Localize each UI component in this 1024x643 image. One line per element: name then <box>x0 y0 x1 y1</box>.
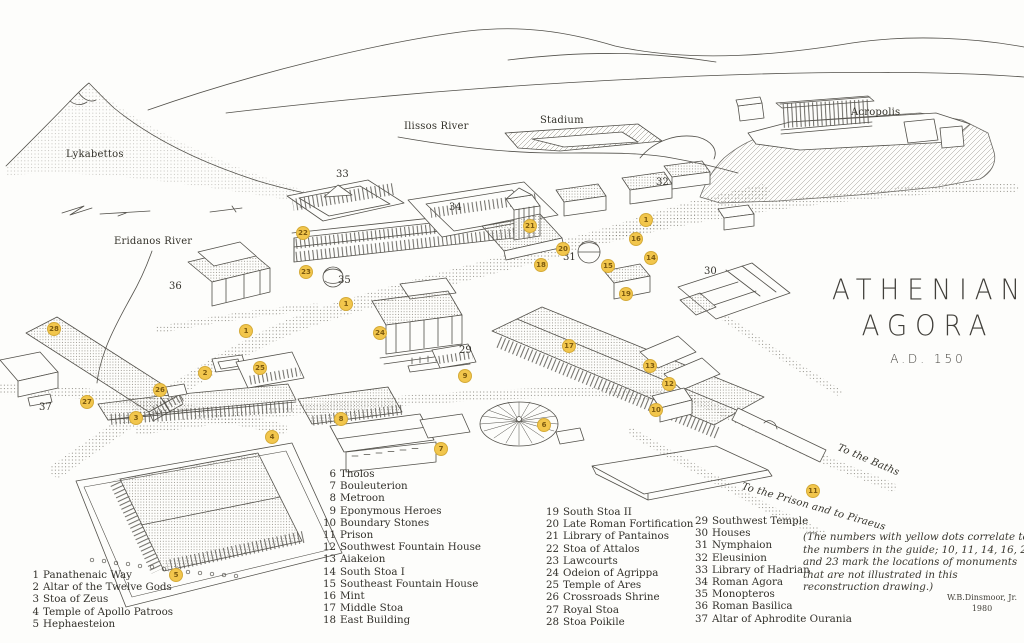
legend-entry-9: 9Eponymous Heroes <box>323 505 481 517</box>
legend-entry-17: 17Middle Stoa <box>323 602 481 614</box>
map-marker-2[interactable]: 2 <box>198 366 212 380</box>
map-number-33: 33 <box>336 169 349 180</box>
title-line-2: AGORA <box>832 311 1024 343</box>
map-number-34: 34 <box>449 202 462 213</box>
legend-entry-10: 10Boundary Stones <box>323 517 481 529</box>
map-marker-4[interactable]: 4 <box>265 430 279 444</box>
title-date: A.D. 150 <box>832 352 1024 366</box>
title-line-1: ATHENIAN <box>832 275 1024 307</box>
map-number-37: 37 <box>39 402 52 413</box>
legend-entry-27: 27Royal Stoa <box>546 604 693 616</box>
map-label-to-the-baths: To the Baths <box>836 442 901 478</box>
map-marker-7[interactable]: 7 <box>434 442 448 456</box>
legend-entry-37: 37Altar of Aphrodite Ourania <box>695 613 852 625</box>
credit-name: W.B.Dinsmoor, Jr. <box>940 593 1024 604</box>
map-marker-6[interactable]: 6 <box>537 418 551 432</box>
legend-column-2: 6Tholos7Bouleuterion8Metroon9Eponymous H… <box>323 468 481 627</box>
map-marker-19[interactable]: 19 <box>619 287 633 301</box>
legend-entry-18: 18East Building <box>323 614 481 626</box>
map-marker-12[interactable]: 12 <box>662 377 676 391</box>
map-title: ATHENIAN AGORA A.D. 150 <box>832 276 1024 366</box>
legend-entry-26: 26Crossroads Shrine <box>546 591 693 603</box>
map-marker-1[interactable]: 1 <box>339 297 353 311</box>
legend-entry-12: 12Southwest Fountain House <box>323 541 481 553</box>
map-number-35: 35 <box>338 275 351 286</box>
map-marker-17[interactable]: 17 <box>562 339 576 353</box>
map-marker-13[interactable]: 13 <box>643 359 657 373</box>
map-marker-28[interactable]: 28 <box>47 322 61 336</box>
legend-entry-5: 5Hephaesteion <box>26 618 173 630</box>
map-marker-14[interactable]: 14 <box>644 251 658 265</box>
legend-entry-14: 14South Stoa I <box>323 566 481 578</box>
map-note: (The numbers with yellow dots correlate … <box>803 531 1024 594</box>
legend-entry-36: 36Roman Basilica <box>695 600 852 612</box>
legend-entry-28: 28Stoa Poikile <box>546 616 693 628</box>
map-marker-15[interactable]: 15 <box>601 259 615 273</box>
legend-entry-13: 13Aiakeion <box>323 553 481 565</box>
legend-entry-7: 7Bouleuterion <box>323 480 481 492</box>
map-marker-16[interactable]: 16 <box>629 232 643 246</box>
map-marker-26[interactable]: 26 <box>153 383 167 397</box>
map-marker-11[interactable]: 11 <box>806 484 820 498</box>
map-marker-23[interactable]: 23 <box>299 265 313 279</box>
map-marker-9[interactable]: 9 <box>458 369 472 383</box>
legend-entry-24: 24Odeion of Agrippa <box>546 567 693 579</box>
map-page: LykabettosIlissos RiverStadiumAcropolisE… <box>0 0 1024 643</box>
legend-entry-3: 3Stoa of Zeus <box>26 593 173 605</box>
legend-entry-11: 11Prison <box>323 529 481 541</box>
legend-entry-1: 1Panathenaic Way <box>26 569 173 581</box>
map-number-36: 36 <box>169 281 182 292</box>
map-label-lykabettos: Lykabettos <box>66 149 124 160</box>
map-marker-1[interactable]: 1 <box>239 324 253 338</box>
legend-entry-16: 16Mint <box>323 590 481 602</box>
legend-entry-4: 4Temple of Apollo Patroos <box>26 606 173 618</box>
map-marker-27[interactable]: 27 <box>80 395 94 409</box>
credit: W.B.Dinsmoor, Jr. 1980 <box>940 593 1024 615</box>
map-marker-22[interactable]: 22 <box>296 226 310 240</box>
map-number-30: 30 <box>704 266 717 277</box>
map-marker-24[interactable]: 24 <box>373 326 387 340</box>
legend-entry-22: 22Stoa of Attalos <box>546 543 693 555</box>
legend-entry-23: 23Lawcourts <box>546 555 693 567</box>
map-label-ilissos-river: Ilissos River <box>404 121 469 132</box>
legend-entry-2: 2Altar of the Twelve Gods <box>26 581 173 593</box>
legend-column-3: 19South Stoa II20Late Roman Fortificatio… <box>546 506 693 628</box>
legend-entry-8: 8Metroon <box>323 492 481 504</box>
legend-entry-15: 15Southeast Fountain House <box>323 578 481 590</box>
legend-entry-29: 29Southwest Temple <box>695 515 852 527</box>
map-marker-21[interactable]: 21 <box>523 219 537 233</box>
legend-entry-19: 19South Stoa II <box>546 506 693 518</box>
map-number-32: 32 <box>656 177 669 188</box>
legend-column-1: 1Panathenaic Way2Altar of the Twelve God… <box>26 569 173 630</box>
map-label-acropolis: Acropolis <box>851 107 900 118</box>
legend-entry-6: 6Tholos <box>323 468 481 480</box>
map-number-29: 29 <box>459 345 472 356</box>
map-marker-1[interactable]: 1 <box>639 213 653 227</box>
credit-year: 1980 <box>940 604 1024 615</box>
map-marker-25[interactable]: 25 <box>253 361 267 375</box>
map-marker-3[interactable]: 3 <box>129 411 143 425</box>
map-marker-10[interactable]: 10 <box>649 403 663 417</box>
map-label-stadium: Stadium <box>540 115 584 126</box>
legend-entry-25: 25Temple of Ares <box>546 579 693 591</box>
map-label-eridanos-river: Eridanos River <box>114 236 192 247</box>
legend-entry-20: 20Late Roman Fortification <box>546 518 693 530</box>
map-marker-8[interactable]: 8 <box>334 412 348 426</box>
map-marker-18[interactable]: 18 <box>534 258 548 272</box>
map-marker-20[interactable]: 20 <box>556 242 570 256</box>
legend-entry-21: 21Library of Pantainos <box>546 530 693 542</box>
